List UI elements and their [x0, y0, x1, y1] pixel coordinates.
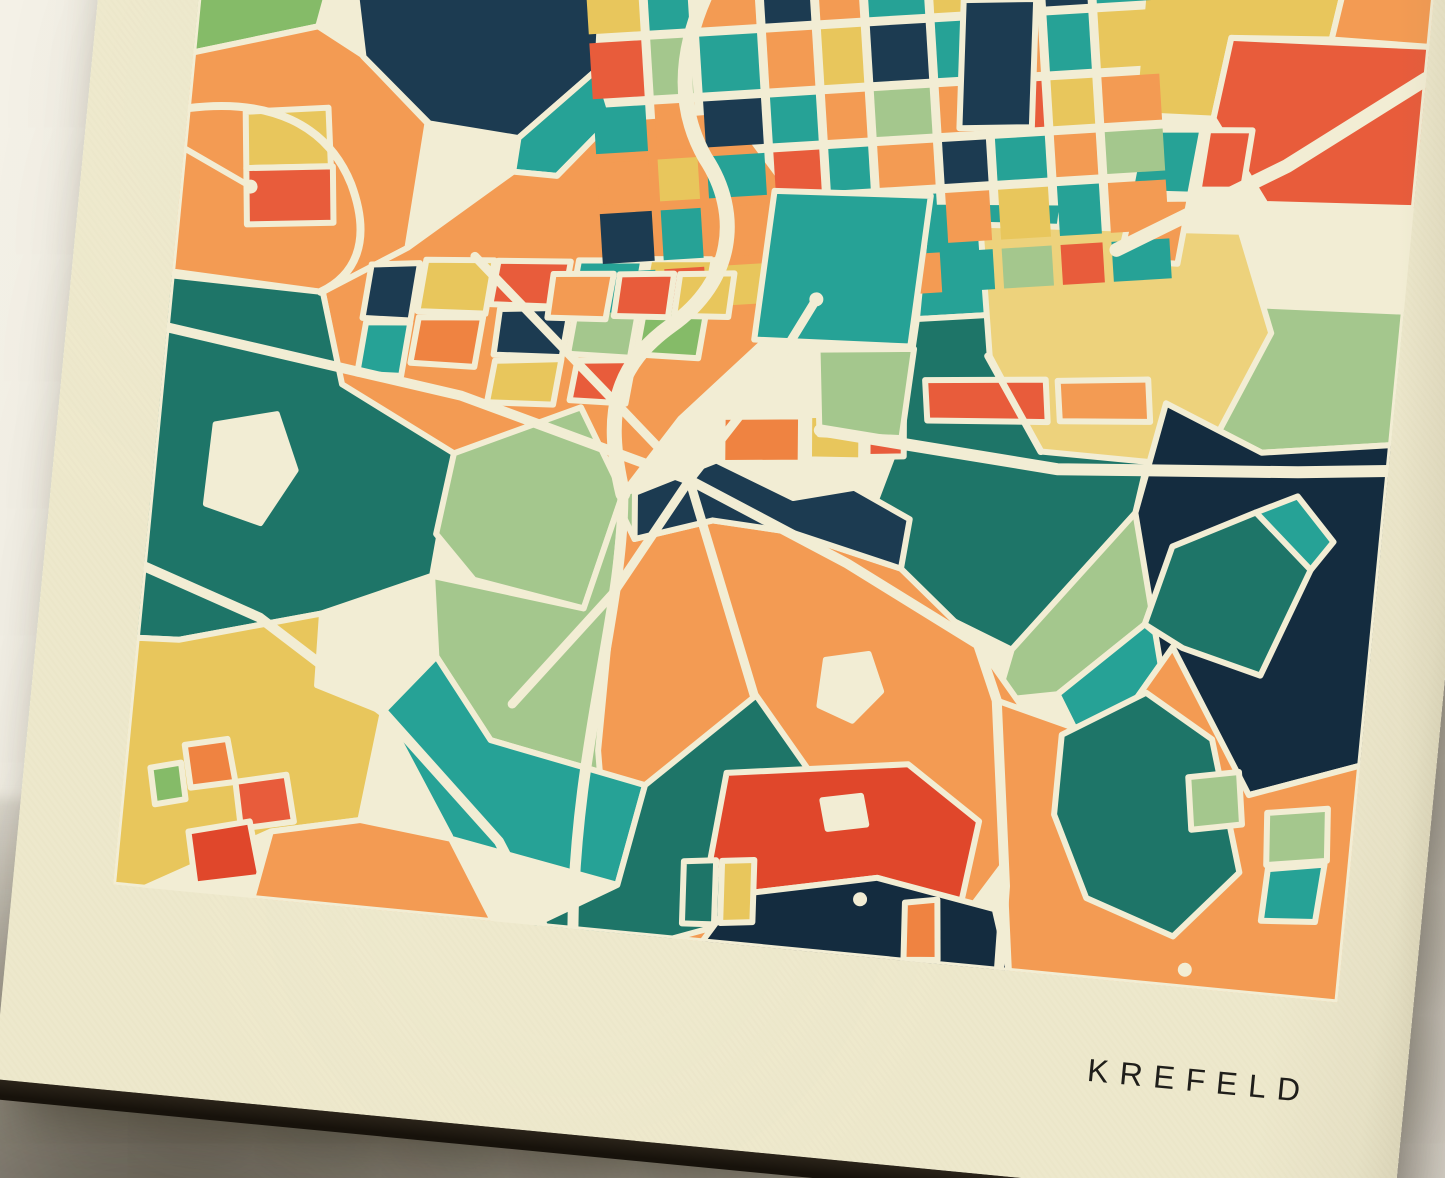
city-map-graphic — [113, 0, 1441, 1003]
city-title: KREFELD — [1038, 1042, 1361, 1118]
map-area — [113, 0, 1441, 1003]
photo-scene: KREFELD — [0, 0, 1445, 1178]
map-poster-paper: KREFELD — [0, 0, 1445, 1178]
